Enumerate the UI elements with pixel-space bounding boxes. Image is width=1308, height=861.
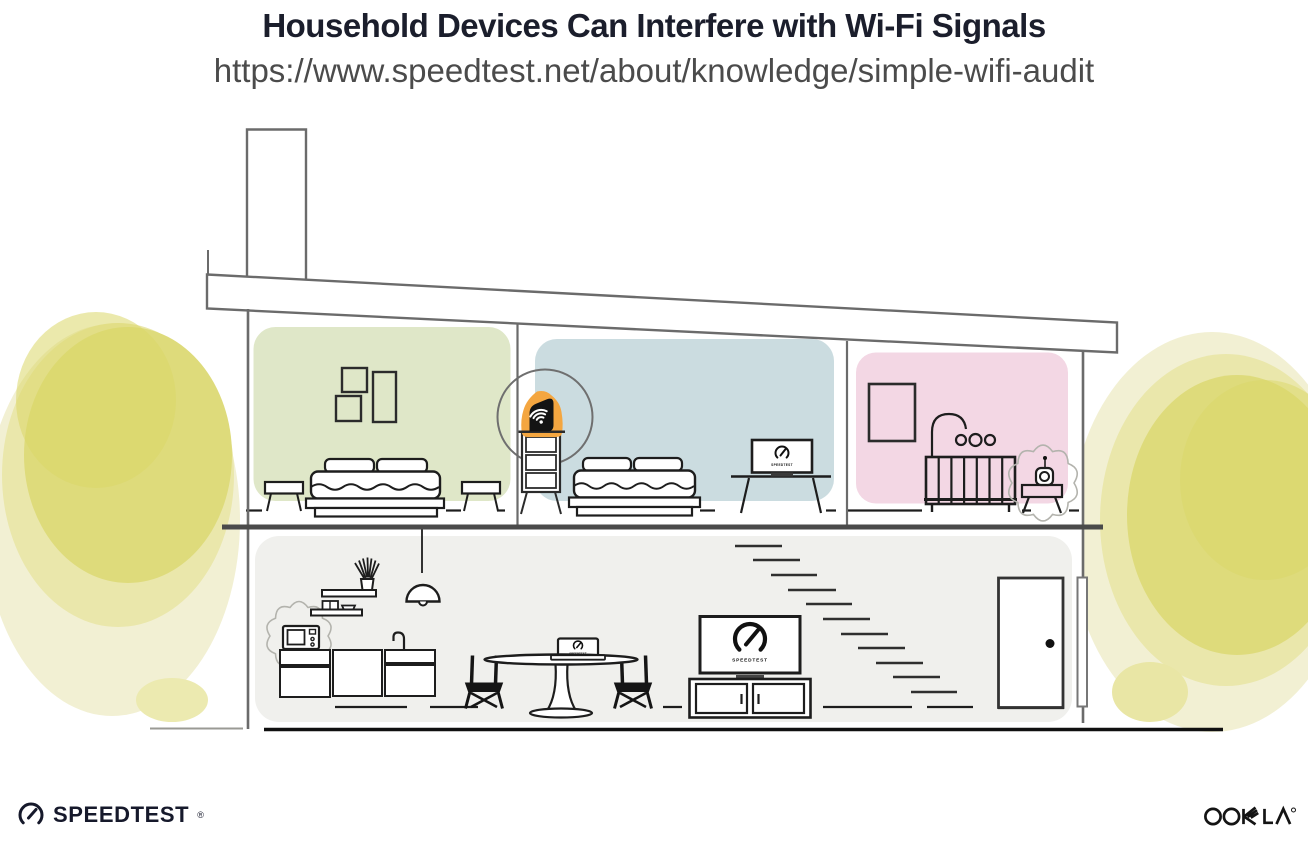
house-illustration: SPEEDTEST <box>0 0 1308 861</box>
speedtest-wordmark: SPEEDTEST <box>53 802 189 828</box>
ookla-logo <box>1204 804 1296 833</box>
bed-middle-icon <box>569 458 700 516</box>
media-console-icon <box>690 679 811 718</box>
foliage-left <box>0 312 240 722</box>
chimney <box>247 130 306 282</box>
speedtest-reg-mark: ® <box>197 810 204 820</box>
laptop-dining-base <box>551 655 605 660</box>
downspout <box>1078 578 1088 707</box>
infographic-page: { "header": { "title": "Household Device… <box>0 0 1308 861</box>
foliage-right <box>1070 332 1308 732</box>
laptop-bedroom-label: SPEEDTEST <box>771 463 793 467</box>
front-door-icon <box>999 578 1064 708</box>
microwave-icon <box>283 626 319 649</box>
speedtest-logo: SPEEDTEST ® <box>16 800 204 830</box>
speedtest-gauge-icon <box>16 800 46 830</box>
ookla-wordmark <box>1204 804 1296 828</box>
doorknob <box>1046 639 1055 648</box>
bed-left-icon <box>306 459 444 517</box>
tv-label: SPEEDTEST <box>732 658 768 664</box>
tv-icon: SPEEDTEST <box>700 617 800 680</box>
kitchen-cabinets <box>280 650 435 697</box>
laptop-bedroom-icon: SPEEDTEST <box>752 440 812 477</box>
